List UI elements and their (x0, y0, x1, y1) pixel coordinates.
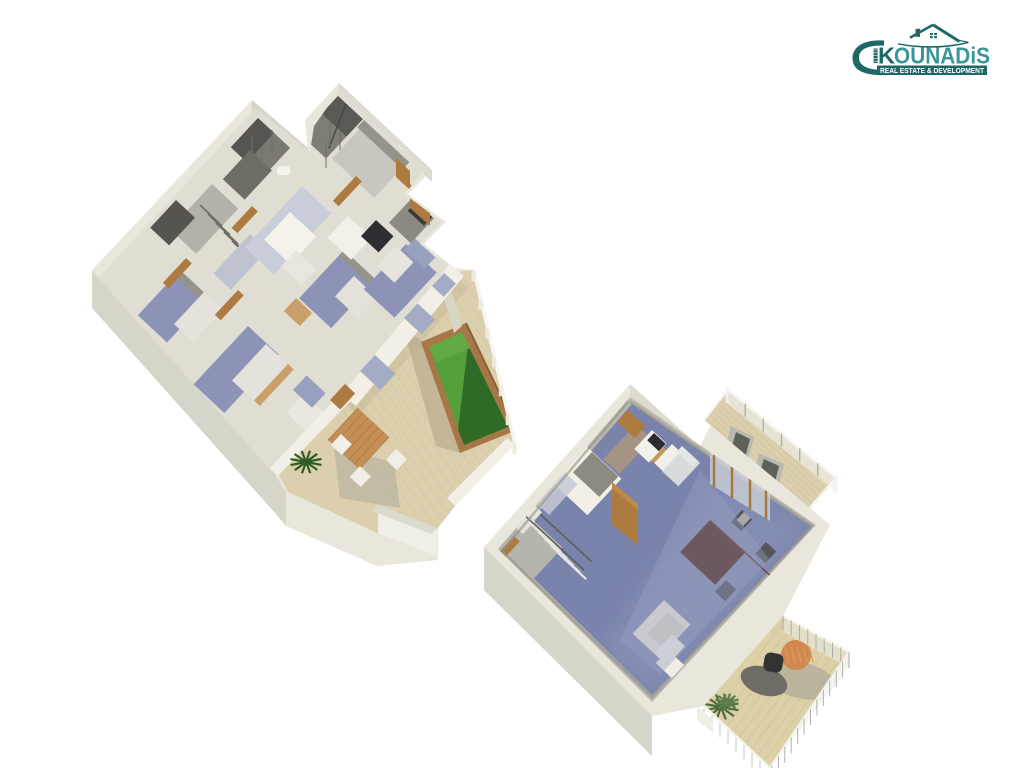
svg-text:K: K (878, 43, 895, 69)
svg-text:REAL ESTATE & DEVELOPMENT: REAL ESTATE & DEVELOPMENT (880, 66, 984, 75)
